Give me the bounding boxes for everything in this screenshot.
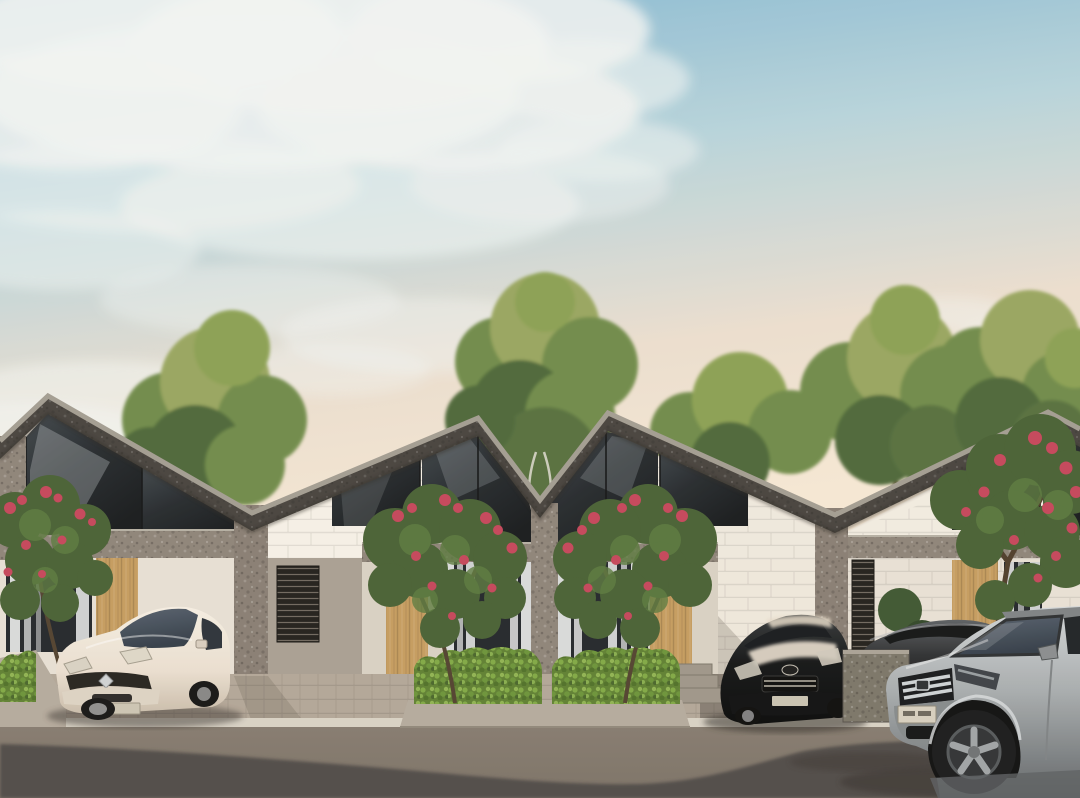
warm-light-overlay bbox=[0, 0, 1080, 798]
architectural-render: Street-level architectural rendering of … bbox=[0, 0, 1080, 798]
scene-canvas bbox=[0, 0, 1080, 798]
